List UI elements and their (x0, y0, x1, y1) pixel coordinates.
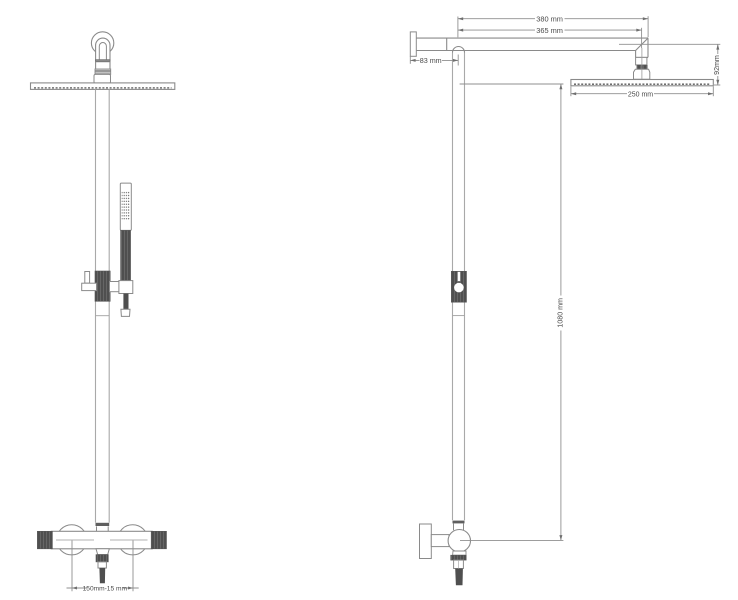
svg-text:380 mm: 380 mm (536, 14, 563, 23)
svg-text:250 mm: 250 mm (628, 91, 653, 98)
svg-text:83 mm: 83 mm (420, 56, 442, 65)
svg-text:365 mm: 365 mm (536, 26, 563, 35)
svg-text:150mm-15 mm: 150mm-15 mm (83, 585, 128, 592)
svg-text:92mm: 92mm (713, 55, 721, 75)
svg-text:1080 mm: 1080 mm (557, 298, 565, 328)
